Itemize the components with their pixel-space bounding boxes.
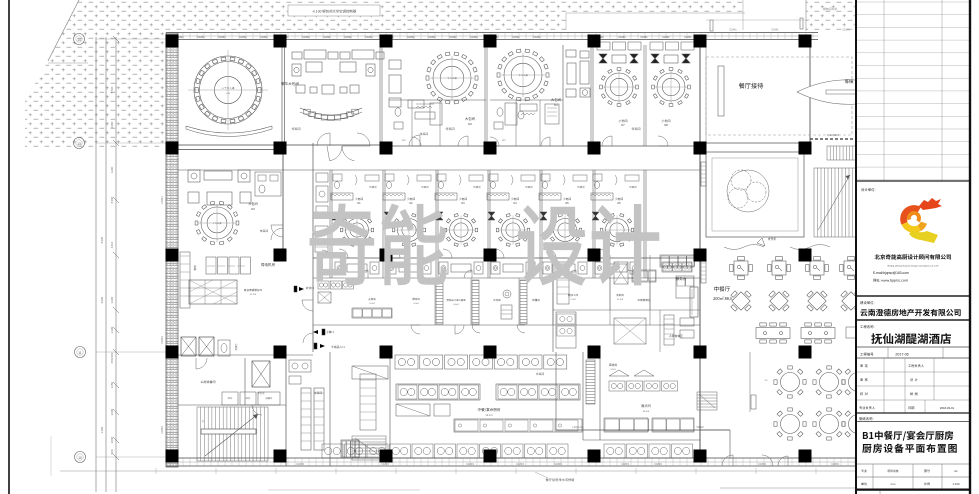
svg-text:8400: 8400	[100, 236, 104, 243]
svg-text:11: 11	[78, 351, 82, 355]
svg-text:C1841: C1841	[239, 36, 247, 39]
svg-text:1980: 1980	[110, 121, 114, 128]
svg-text:C1841: C1841	[160, 196, 164, 204]
svg-text:5706: 5706	[110, 86, 114, 93]
svg-text:3300: 3300	[110, 296, 114, 303]
svg-text:F-JM-2524: F-JM-2524	[827, 134, 839, 137]
svg-text:2018-03-01: 2018-03-01	[940, 406, 955, 410]
svg-text:C1841: C1841	[640, 36, 648, 39]
svg-text:13: 13	[77, 142, 81, 146]
svg-text:C1841: C1841	[407, 36, 415, 39]
svg-text:C1841: C1841	[771, 29, 779, 32]
svg-text:450/400: 450/400	[110, 352, 114, 363]
svg-text:C1833: C1833	[296, 462, 304, 466]
svg-text:C1833: C1833	[381, 462, 389, 466]
svg-text:C1841: C1841	[729, 29, 737, 32]
svg-text:C1833: C1833	[516, 462, 524, 466]
svg-text:3300: 3300	[100, 426, 104, 433]
svg-text:C1841: C1841	[218, 36, 226, 39]
svg-text:WC: WC	[402, 140, 406, 142]
svg-text:C1841: C1841	[428, 36, 436, 39]
svg-text:D1: D1	[554, 103, 558, 107]
svg-text:C1833: C1833	[654, 462, 662, 466]
svg-text:C1841: C1841	[470, 36, 478, 39]
svg-text:14: 14	[77, 38, 81, 42]
svg-text:C1841: C1841	[618, 36, 626, 39]
svg-text:900: 900	[110, 449, 114, 454]
svg-text:WC: WC	[502, 140, 506, 142]
svg-text:Beijing Qineng Gaochu Design: Beijing Qineng Gaochu Design Consultants…	[888, 265, 939, 268]
svg-text:VD: VD	[764, 380, 767, 382]
svg-text:C1841: C1841	[684, 36, 692, 39]
svg-text:4410: 4410	[110, 241, 114, 248]
svg-text:A1: A1	[954, 469, 958, 473]
svg-text:C1833: C1833	[554, 462, 562, 466]
svg-text:D3: D3	[251, 207, 255, 211]
svg-text:C1841: C1841	[260, 36, 268, 39]
svg-text:D7: D7	[621, 123, 625, 127]
svg-text:C1833: C1833	[621, 462, 629, 466]
svg-text:mm: mm	[891, 482, 896, 486]
svg-text:D8: D8	[664, 123, 668, 127]
svg-text:E-mail:bjqnsc@163.com: E-mail:bjqnsc@163.com	[873, 271, 909, 275]
svg-text:C1841: C1841	[323, 36, 331, 39]
svg-text:C1833: C1833	[160, 336, 164, 344]
svg-text:C1833: C1833	[758, 462, 766, 466]
svg-text:10: 10	[78, 456, 82, 460]
svg-text:9400: 9400	[100, 296, 104, 303]
svg-text:C1833: C1833	[160, 426, 164, 434]
svg-text:C1833: C1833	[466, 462, 474, 466]
svg-text:C1833: C1833	[831, 462, 839, 466]
svg-text:C1841: C1841	[302, 36, 310, 39]
svg-text:C1841: C1841	[662, 36, 670, 39]
svg-text:C1841: C1841	[533, 36, 541, 39]
svg-text:C1841: C1841	[512, 36, 520, 39]
svg-text:2017-06: 2017-06	[895, 353, 908, 357]
svg-text:C1841: C1841	[842, 29, 850, 32]
svg-text:0.8M: 0.8M	[226, 93, 231, 95]
svg-text:C1841: C1841	[365, 36, 373, 39]
svg-text:1200: 1200	[110, 166, 114, 173]
svg-text:1:100: 1:100	[953, 482, 960, 486]
svg-text:VD842: VD842	[696, 426, 704, 429]
svg-text:C1841: C1841	[344, 36, 352, 39]
svg-text:C1841: C1841	[449, 36, 457, 39]
svg-text:D2: D2	[468, 122, 472, 126]
svg-text:C1841: C1841	[197, 36, 205, 39]
